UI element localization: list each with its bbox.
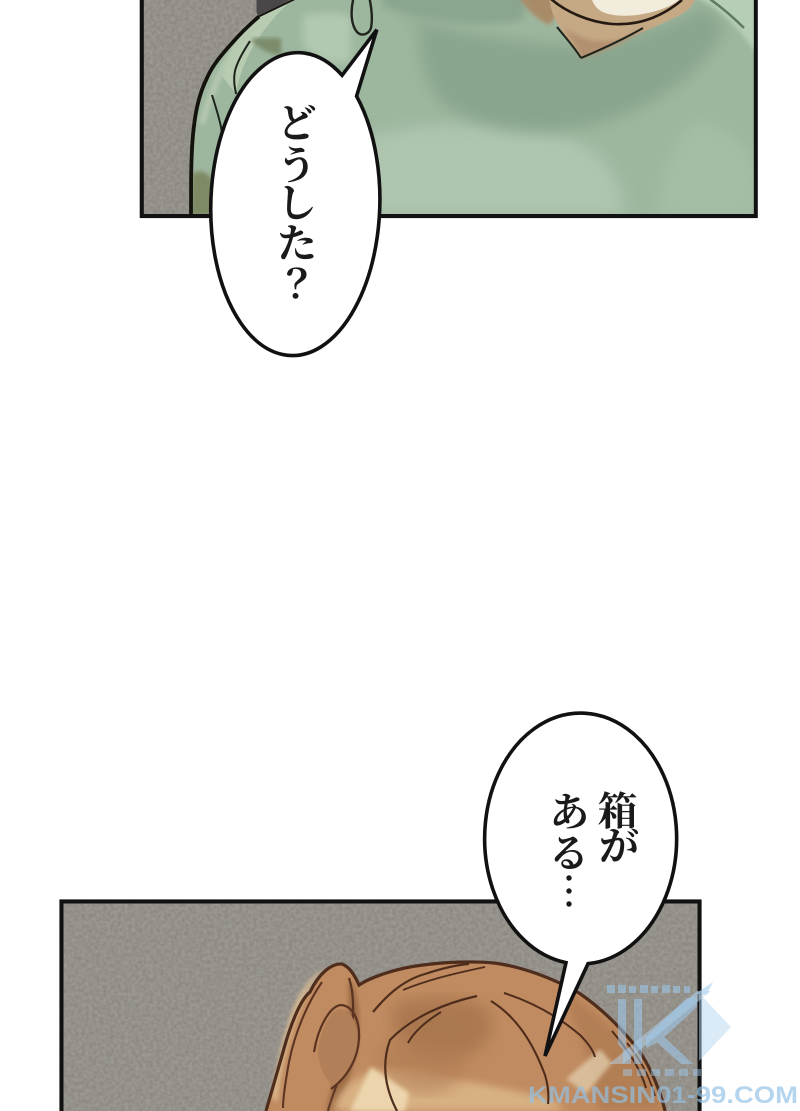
svg-text:KMANSIN01-99.COM: KMANSIN01-99.COM bbox=[528, 1082, 798, 1109]
